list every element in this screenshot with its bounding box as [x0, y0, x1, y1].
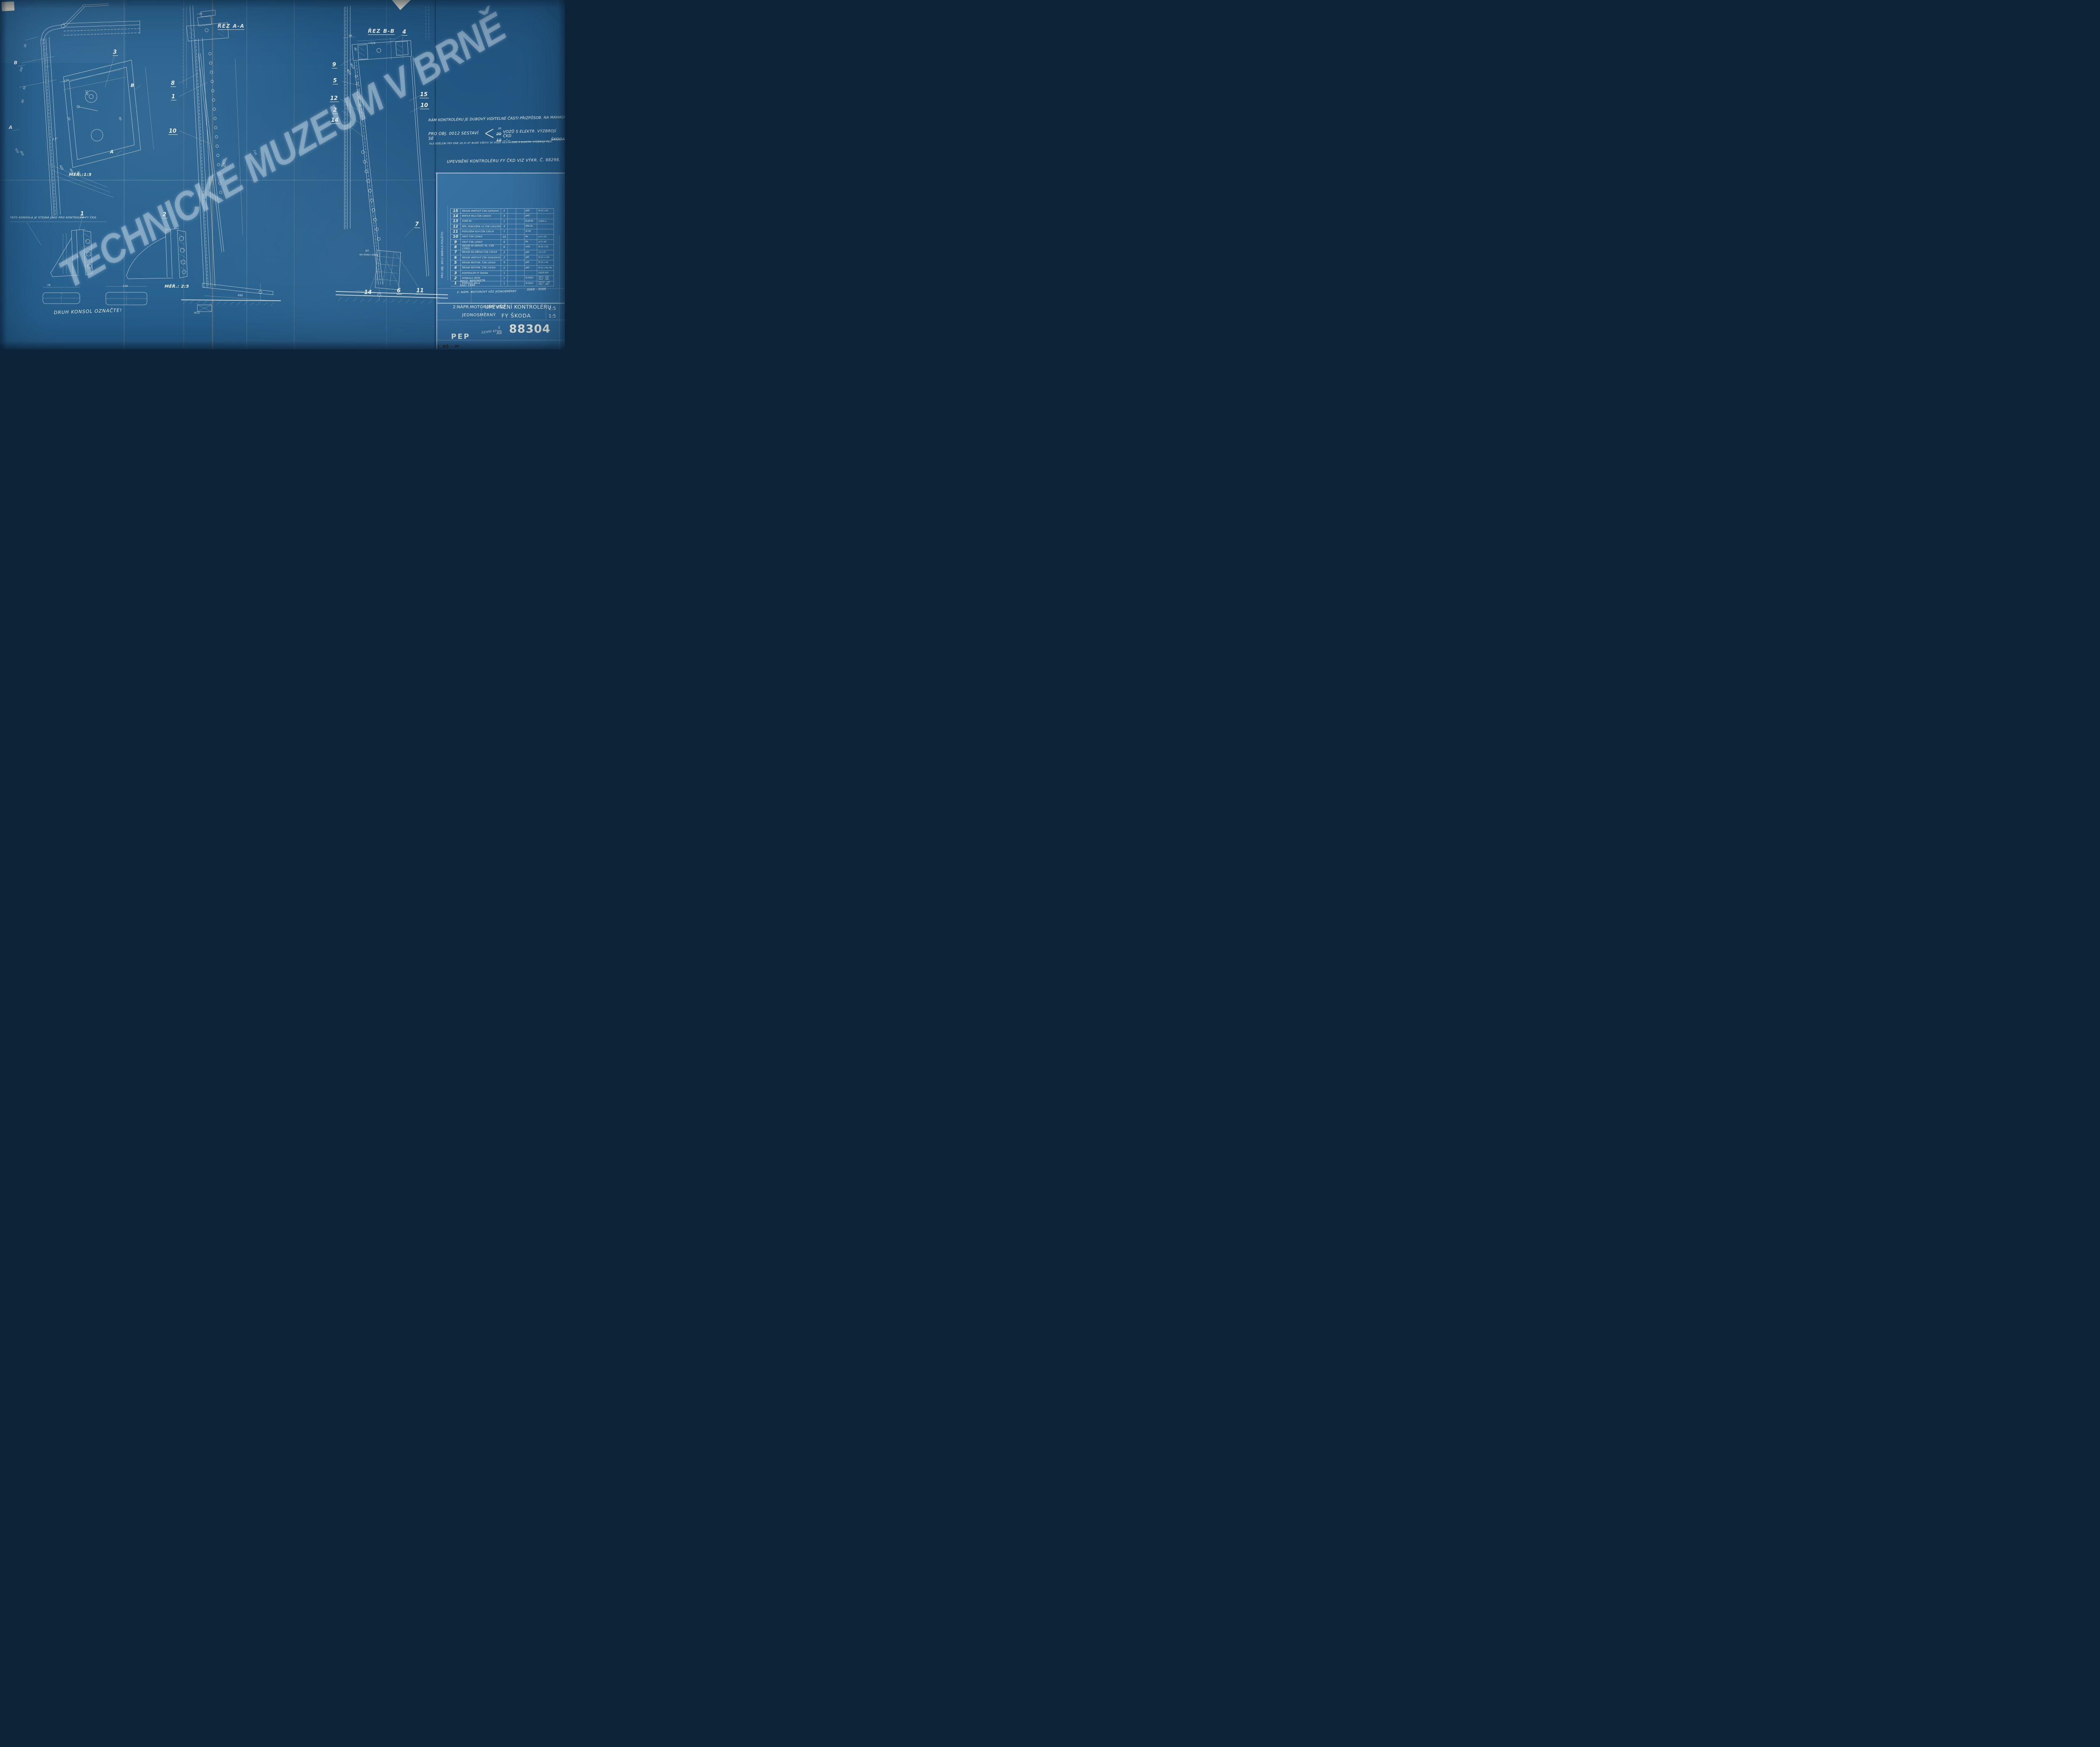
- table-cell-desc: VRUT ČSN 1294/II: [461, 240, 501, 244]
- table-cell-no: 8: [451, 245, 461, 249]
- dimension-label: M10: [349, 63, 354, 69]
- table-cell-sp: [516, 209, 525, 213]
- table-cell-sp: [516, 245, 525, 249]
- part-callout: 12: [330, 96, 339, 102]
- table-cell-dim: 50x70 , 192 50x7 , 240: [537, 281, 554, 286]
- table-cell-sp: [516, 224, 525, 229]
- part-callout: 3: [113, 50, 118, 56]
- table-cell-dim: 0,400 m: [537, 219, 554, 224]
- dimension-label: 40: [354, 47, 357, 51]
- table-cell-no: 12: [451, 224, 461, 229]
- table-cell-no: 7: [451, 250, 461, 255]
- table-cell-dim: [537, 214, 554, 218]
- table-row: 13SVÁR δ61ELEKTR.0,400 m: [451, 219, 554, 224]
- under-table-note-2: 1941 1949: [459, 283, 475, 287]
- table-cell-no: 2: [451, 276, 461, 281]
- table-cell-sp: [508, 235, 516, 239]
- table-cell-qty: 2: [501, 250, 508, 255]
- table-cell-desc: ŠROUB VRATOVÝ ČSN 1024/XXVII: [461, 255, 501, 260]
- table-cell-qty: 1: [501, 276, 508, 281]
- table-cell-qty: 2: [501, 255, 508, 260]
- table-cell-desc: PODLOŽKA R14 ČSN 1301/II: [461, 229, 501, 234]
- table-cell-sp: [508, 214, 516, 218]
- table-cell-sp: [508, 266, 516, 270]
- section-letter: A: [110, 150, 114, 154]
- crossed-skoda: ŠKODA: [551, 137, 565, 142]
- table-cell-dim: M 12 x 80: [537, 209, 554, 213]
- titleblock-vehicle-line2: JEDNOSMĚRNÝ: [462, 313, 496, 317]
- table-cell-dim: M 12 x 110: [537, 255, 554, 260]
- table-cell-sp: [516, 229, 525, 234]
- table-cell-sp: [516, 255, 525, 260]
- table-cell-sp: [508, 209, 516, 213]
- table-cell-no: 5: [451, 260, 461, 265]
- series-letter: t: [497, 326, 502, 331]
- table-cell-no: 6: [451, 255, 461, 260]
- series-roman: XII: [496, 331, 502, 336]
- part-callout: 14: [331, 118, 340, 124]
- table-cell-qty: 1: [501, 281, 508, 286]
- table-cell-sp: [508, 260, 516, 265]
- dimension-label: 7,5°: [52, 137, 58, 142]
- section-letter: B: [14, 60, 17, 65]
- table-side-vertical-note: PRO OBJ. 0012 NEBYLO POUŽITO: [441, 232, 444, 278]
- table-cell-no: 14: [451, 214, 461, 218]
- section-title: ŘEZ A-A: [218, 24, 244, 30]
- table-cell-desc: PÉR. PODLOŽKA 12 ČSN 1301/VIII: [461, 224, 501, 229]
- table-cell-dim: M 10 x 50: [537, 245, 554, 249]
- dimension-label: M12: [194, 312, 200, 315]
- dimension-label: 490: [238, 294, 243, 297]
- table-cell-sp: [508, 245, 516, 249]
- dimension-label: 192: [19, 66, 24, 72]
- table-cell-desc: ŠROUB DO DŘEVA ČSN 1303/X: [461, 250, 501, 255]
- section-letter: A: [9, 125, 13, 130]
- table-cell-no: 9: [451, 240, 461, 244]
- parts-table: 15ŠROUB VRATOVÝ ČSN 1024/XVII2g4DM 12 x …: [450, 208, 554, 280]
- table-cell-qty: 4: [501, 214, 508, 218]
- table-cell-qty: 10: [501, 235, 508, 239]
- table-row: 8ŠROUB SE ZÁPUST. HL. ČSN 1306/II6m5SM 1…: [451, 245, 554, 250]
- dimension-label: 30: [24, 44, 27, 48]
- dimension-label: 525: [14, 148, 19, 154]
- table-cell-desc: KONTROLÉR FY ŠKODA: [461, 271, 501, 275]
- table-cell-desc: ŠROUB VRATOVÝ ČSN 1024/XVII: [461, 209, 501, 213]
- table-row: 12PÉR. PODLOŽKA 12 ČSN 1301/VIII4PÉR.OC.: [451, 224, 554, 229]
- table-row: 4ŠROUB ŠESTIHR. ČSN 1303/II2g40M 12 x 90…: [451, 266, 554, 271]
- pep-stamp: PEP: [451, 333, 470, 341]
- table-cell-sp: [508, 276, 516, 281]
- under-table-note-4: 3069 - 3098: [527, 287, 546, 291]
- table-row: 3KONTROLÉR FY ŠKODA1DODÁ PEP: [451, 271, 554, 276]
- titleblock-series-fraction: t XII: [496, 323, 502, 336]
- table-cell-sp: [508, 240, 516, 244]
- table-cell-qty: 1: [501, 271, 508, 275]
- crossed-count-20: 20: [496, 132, 501, 136]
- part-callout: 10: [168, 129, 178, 135]
- table-row: 6ŠROUB VRATOVÝ ČSN 1024/XXVII2g40M 12 x …: [451, 255, 554, 260]
- table-cell-desc: ŠROUB SE ZÁPUST. HL. ČSN 1306/II: [461, 245, 501, 249]
- table-cell-sp: [508, 229, 516, 234]
- table-cell-no: 4: [451, 266, 461, 270]
- table-row: 9VRUT ČSN 1294/II6Msφ 4 x 40: [451, 240, 554, 245]
- table-cell-mat: g4D: [525, 209, 537, 213]
- part-callout: 6: [396, 288, 402, 294]
- drawing-number: 88304: [509, 323, 551, 336]
- table-cell-dim: 50x7 , 192 50x7 , 380: [537, 276, 554, 281]
- table-cell-sp: [508, 281, 516, 286]
- part-callout: 1: [171, 94, 176, 100]
- part-callout: 2: [333, 108, 338, 114]
- part-callout: 9: [332, 62, 337, 68]
- table-cell-dim: φ 4 x 20: [537, 235, 554, 239]
- table-cell-sp: [516, 235, 525, 239]
- table-cell-desc: MATICE M12 ČSN 1303/VI: [461, 214, 501, 218]
- table-cell-sp: [516, 260, 525, 265]
- part-callout: 14: [364, 290, 373, 296]
- titleblock-scale-2: 1:5: [549, 313, 556, 319]
- alt-line1-text: VOZŮ S ELEKTR. VÝZBROJÍ ČKD: [503, 129, 565, 139]
- table-cell-mat: St.00: [525, 229, 537, 234]
- section-letter: B: [131, 83, 134, 88]
- table-cell-no: 15: [451, 209, 461, 213]
- table-cell-qty: 4: [501, 224, 508, 229]
- table-cell-desc: VRUT ČSN 1294/II: [461, 235, 501, 239]
- table-cell-sp: [516, 271, 525, 275]
- part-callout: 10: [420, 103, 429, 109]
- table-cell-no: 11: [451, 229, 461, 234]
- corner-label-sticker: [1, 1, 14, 11]
- table-row: 5ŠROUB ŠESTIHR. ČSN 1303/II4g40M 12 x 30: [451, 260, 554, 265]
- table-row: 7ŠROUB DO DŘEVA ČSN 1303/X2g4012 x 55: [451, 250, 554, 255]
- dimension-label: 58: [349, 34, 352, 37]
- table-cell-mat: g40: [525, 266, 537, 270]
- brace-glyph: <: [484, 124, 495, 143]
- table-row: 10VRUT ČSN 1294/II10Msφ 4 x 20: [451, 235, 554, 240]
- table-cell-dim: M 12 x 90, Mo: [537, 266, 554, 270]
- part-callout: 2: [162, 212, 168, 218]
- dimension-label: ~124: [61, 79, 69, 84]
- table-cell-sp: [516, 214, 525, 218]
- table-cell-dim: [537, 229, 554, 234]
- table-cell-sp: [516, 276, 525, 281]
- table-cell-dim: DODÁ PEP: [537, 271, 554, 275]
- table-cell-mat: St.0012: [525, 281, 537, 286]
- titleblock-title-line2: FY ŠKODA: [501, 312, 531, 319]
- table-cell-dim: 12 x 55: [537, 250, 554, 255]
- table-cell-sp: [516, 240, 525, 244]
- dimension-label: 172: [223, 162, 226, 168]
- table-cell-mat: [525, 271, 537, 275]
- table-cell-qty: 6: [501, 240, 508, 244]
- dimension-label: M12: [346, 69, 351, 75]
- table-cell-no: 13: [451, 219, 461, 224]
- dimension-label: ~124: [368, 42, 375, 45]
- dimension-label: 420: [59, 165, 64, 171]
- table-cell-mat: g40: [525, 260, 537, 265]
- pencil-annotation: 1.90 - m: [437, 343, 459, 349]
- table-cell-sp: [516, 281, 525, 286]
- table-cell-qty: 6: [501, 245, 508, 249]
- dimension-label: 60: [21, 99, 25, 103]
- table-cell-qty: 1: [501, 229, 508, 234]
- table-row: 15ŠROUB VRATOVÝ ČSN 1024/XVII2g4DM 12 x …: [451, 209, 554, 214]
- part-callout: 8: [171, 81, 176, 87]
- table-cell-mat: Ms: [525, 240, 537, 244]
- part-callout: 1: [80, 211, 85, 218]
- dimension-label: 120: [85, 90, 89, 96]
- table-cell-qty: 2: [501, 266, 508, 270]
- table-cell-mat: ELEKTR.: [525, 219, 537, 224]
- table-row: 14MATICE M12 ČSN 1303/VI4g4D: [451, 214, 554, 219]
- table-cell-mat: PÉR.OC.: [525, 224, 537, 229]
- dimension-label: 60: [23, 86, 26, 90]
- part-callout: 4: [402, 29, 407, 36]
- table-cell-no: 10: [451, 235, 461, 239]
- blueprint-sheet: TECHNICKÉ MUZEUM V BRNĚ ŘEZ A-AŘEZ B-BMĚ…: [0, 0, 565, 349]
- part-callout: 15: [420, 92, 429, 98]
- table-cell-dim: M 12 x 30: [537, 260, 554, 265]
- table-cell-sp: [516, 250, 525, 255]
- table-cell-qty: 4: [501, 260, 508, 265]
- table-cell-qty: 1: [501, 219, 508, 224]
- table-cell-mat: St.0012: [525, 276, 537, 281]
- table-cell-qty: 2: [501, 209, 508, 213]
- part-callout: 11: [416, 288, 425, 294]
- dimension-label: 20: [67, 117, 71, 121]
- table-cell-mat: Ms: [525, 235, 537, 239]
- part-callout: 5: [333, 78, 338, 84]
- dimension-label: 146: [123, 285, 128, 288]
- table-cell-dim: [537, 224, 554, 229]
- table-cell-desc: SVÁR δ6: [461, 219, 501, 224]
- table-cell-sp: [508, 250, 516, 255]
- table-cell-desc: ŠROUB ŠESTIHR. ČSN 1303/II: [461, 260, 501, 265]
- table-cell-dim: φ 4 x 40: [537, 240, 554, 244]
- table-cell-sp: [516, 219, 525, 224]
- table-cell-sp: [508, 219, 516, 224]
- table-cell-mat: m5S: [525, 245, 537, 249]
- dimension-label: 78: [47, 284, 50, 287]
- dimension-label: 80: [118, 117, 122, 121]
- titleblock-scale-1: 2:5: [549, 306, 556, 311]
- table-cell-sp: [508, 224, 516, 229]
- table-cell-sp: [508, 271, 516, 275]
- table-cell-sp: [508, 255, 516, 260]
- dimension-label: 405: [19, 150, 24, 156]
- table-cell-no: 3: [451, 271, 461, 275]
- dimension-label: ~44: [197, 13, 202, 16]
- assembly-note-prefix: PRO OBJ. 0012 SESTAVÍ SE: [428, 131, 481, 141]
- table-cell-desc: ŠROUB ŠESTIHR. ČSN 1303/II: [461, 266, 501, 270]
- part-callout: 7: [415, 222, 420, 228]
- table-cell-sp: [516, 266, 525, 270]
- section-title: ŘEZ B-B: [368, 29, 395, 35]
- frame-end-note: NA KONCI RÁMU: [360, 254, 378, 257]
- table-row: 11PODLOŽKA R14 ČSN 1301/II1St.00: [451, 229, 554, 234]
- scale-label: MĚŘ.: 2:5: [165, 285, 189, 289]
- table-cell-mat: g40: [525, 255, 537, 260]
- table-cell-mat: g40: [525, 250, 537, 255]
- titleblock-title-line1: UPEVNĚNÍ KONTROLÉRU: [485, 304, 551, 310]
- table-cell-mat: g4D: [525, 214, 537, 218]
- dimension-label: 110: [253, 150, 257, 155]
- dimension-label: 82.: [365, 249, 370, 252]
